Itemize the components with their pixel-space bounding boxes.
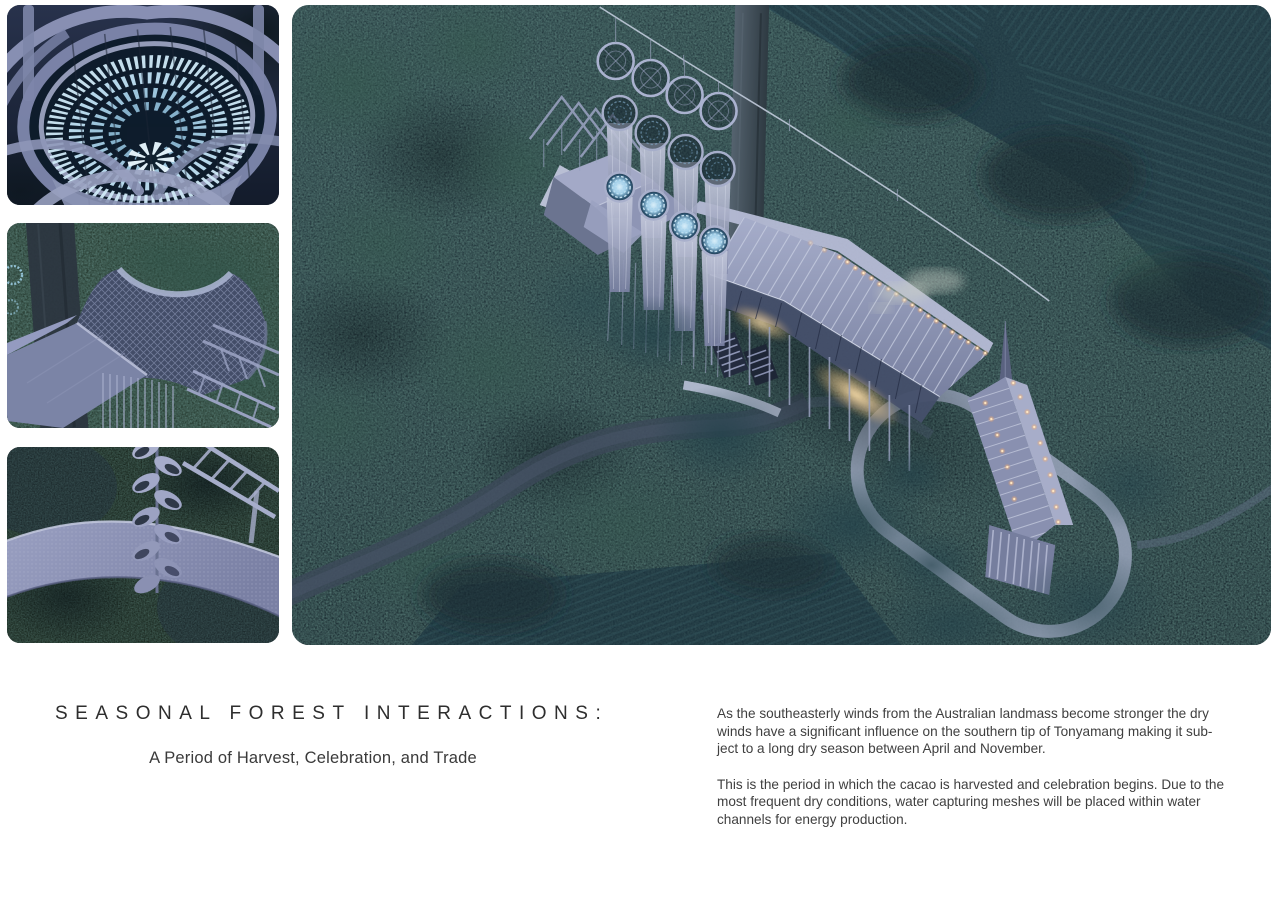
caption-left: SEASONAL FOREST INTERACTIONS: A Period o… (55, 703, 571, 768)
text-line: channels for energy production. (717, 811, 1231, 829)
text-line: most frequent dry conditions, water capt… (717, 793, 1231, 811)
detail-image-basket-bowl (7, 5, 279, 205)
paragraph-2: This is the period in which the cacao is… (717, 776, 1231, 829)
text-line: winds have a significant influence on th… (717, 723, 1231, 741)
main-render-image (292, 5, 1271, 645)
detail-image-walkway-column (7, 447, 279, 643)
text-line: As the southeasterly winds from the Aust… (717, 705, 1231, 723)
detail-image-mesh-roof (7, 223, 279, 428)
paragraph-1: As the southeasterly winds from the Aust… (717, 705, 1231, 758)
board-title: SEASONAL FOREST INTERACTIONS: (55, 703, 571, 725)
presentation-board: SEASONAL FOREST INTERACTIONS: A Period o… (0, 0, 1280, 905)
description-text: As the southeasterly winds from the Aust… (717, 705, 1231, 847)
board-subtitle: A Period of Harvest, Celebration, and Tr… (55, 749, 571, 768)
text-line: ject to a long dry season between April … (717, 740, 1231, 758)
text-line: This is the period in which the cacao is… (717, 776, 1231, 794)
